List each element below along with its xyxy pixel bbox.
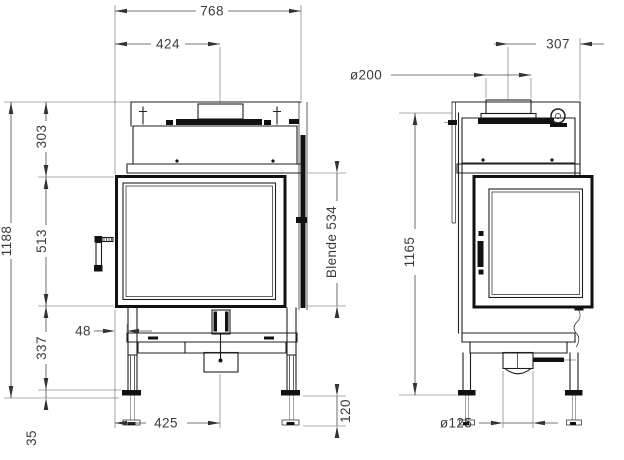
front-bolt-left <box>175 159 178 162</box>
front-collar-plate <box>176 119 262 125</box>
dim-label-duct-diameter: ø125 <box>440 416 472 431</box>
side-view: 307 ø200 1165 ø125 <box>350 37 604 431</box>
side-air-duct <box>503 353 533 374</box>
side-front-wall <box>459 113 463 333</box>
front-firebox-body <box>133 126 297 164</box>
dim-label-foot-min: 35 <box>24 430 39 446</box>
front-center-duct <box>204 310 238 372</box>
front-door-glass-inner <box>126 186 273 297</box>
dim-label-trim-height: Blende 534 <box>324 206 339 278</box>
technical-drawing: 768 424 1188 303 513 337 35 48 <box>0 0 624 460</box>
dim-label-door-height: 513 <box>34 229 49 253</box>
front-object <box>94 102 307 425</box>
side-door-glass-inner <box>492 192 580 295</box>
front-side-step-detail <box>296 217 307 223</box>
side-collar-plate <box>478 118 554 124</box>
front-base-dash-left <box>148 337 158 340</box>
dim-label-flue-offset-right: 307 <box>546 37 570 52</box>
front-base-dash-right <box>264 337 274 340</box>
front-leg-right <box>281 308 300 425</box>
side-collar-flange <box>481 114 536 119</box>
dim-label-overall-height-side: 1165 <box>402 237 417 268</box>
dim-label-foot-adjust: 120 <box>338 399 353 423</box>
dim-label-flue-diameter: ø200 <box>350 68 382 83</box>
side-leg-left <box>458 353 476 425</box>
side-bolt-right <box>550 158 553 161</box>
front-dimensions: 768 424 1188 303 513 337 35 48 <box>0 4 353 446</box>
dim-label-base-section: 337 <box>34 336 49 360</box>
front-top-bracket <box>289 119 299 124</box>
drawing-sheet: 768 424 1188 303 513 337 35 48 <box>0 0 624 460</box>
side-bolt-left <box>481 158 484 161</box>
door-hinge <box>478 231 484 275</box>
side-base-band <box>470 342 567 353</box>
side-top-bracket <box>448 120 457 125</box>
dim-label-overall-width: 768 <box>200 4 224 19</box>
side-cable-bar <box>533 358 564 363</box>
front-base-band <box>138 342 286 353</box>
front-plate-nub-left <box>166 120 173 125</box>
front-flue-collar <box>198 104 243 119</box>
front-leg-left <box>122 308 141 425</box>
side-base-rail <box>462 333 575 342</box>
side-leg-right <box>565 353 583 425</box>
front-mantle-lip <box>127 164 302 173</box>
side-dimensions: 307 ø200 1165 ø125 <box>350 37 604 431</box>
dim-label-flue-offset-left: 424 <box>156 37 180 52</box>
dim-label-top-section: 303 <box>34 125 49 149</box>
side-door-glass-outer <box>489 189 583 298</box>
dim-label-overall-height-front: 1188 <box>0 226 14 257</box>
front-door-frame <box>117 177 286 307</box>
front-door-glass-outer <box>123 183 276 300</box>
front-plate-nub-right <box>264 120 271 125</box>
dim-label-base-width: 425 <box>154 416 178 431</box>
front-bolt-right <box>271 159 274 162</box>
side-cable-connector <box>575 306 584 311</box>
dim-label-frame-offset: 48 <box>75 324 91 339</box>
front-view: 768 424 1188 303 513 337 35 48 <box>0 4 353 446</box>
side-object <box>444 100 592 425</box>
door-handle <box>94 236 113 272</box>
side-mantle-lip <box>457 164 580 173</box>
